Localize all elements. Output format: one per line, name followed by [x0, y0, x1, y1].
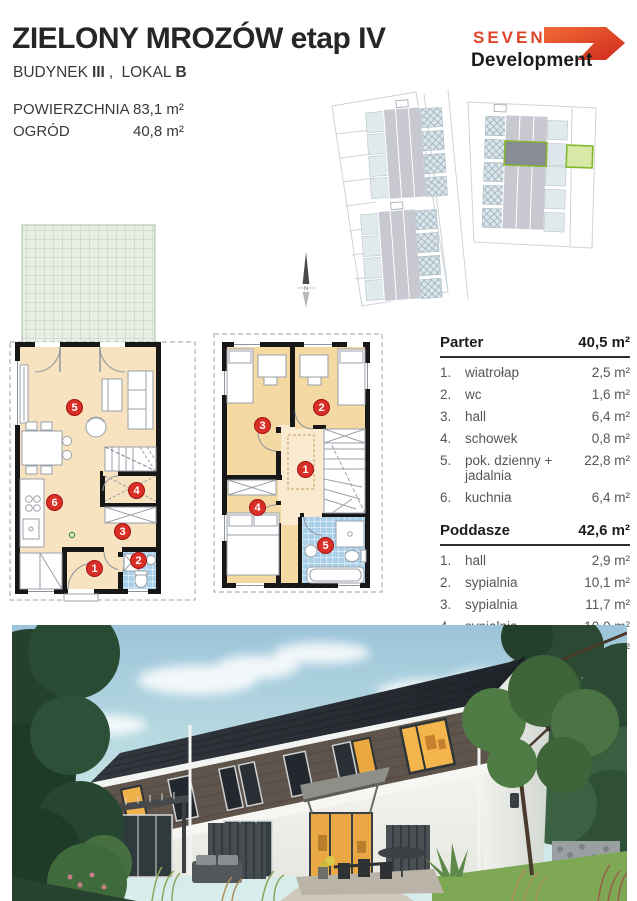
room-name: wc: [465, 387, 592, 402]
logo-brand-bottom: Development: [471, 50, 593, 72]
building-block-a: [365, 97, 448, 200]
room-area: 11,7 m²: [585, 597, 630, 612]
floor-plan-parter: 5 6 4 3 1 2: [8, 203, 200, 603]
budynek-label: BUDYNEK: [13, 64, 88, 81]
room-area: 10,1 m²: [584, 575, 630, 590]
room-area: 0,8 m²: [592, 431, 630, 446]
room-name: sypialnia: [465, 575, 584, 590]
room-badge-parter-6: 6: [46, 494, 63, 511]
room-number: 6.: [440, 490, 465, 505]
stairs: [105, 447, 156, 471]
table-parter-total: 40,5 m²: [578, 334, 630, 351]
room-badge-poddasze-1: 1: [297, 461, 314, 478]
north-arrow-icon: N: [297, 252, 315, 308]
room-tables: Parter 40,5 m² 1.wiatrołap2,5 m² 2.wc1,6…: [440, 334, 630, 673]
room-number: 2.: [440, 575, 465, 590]
room-badge-parter-1: 1: [86, 560, 103, 577]
room-name: wiatrołap: [465, 365, 592, 380]
table-parter: Parter 40,5 m² 1.wiatrołap2,5 m² 2.wc1,6…: [440, 334, 630, 505]
room-number: 2.: [440, 387, 465, 402]
building-block-c: [482, 104, 594, 233]
exterior-render-photo: [12, 625, 627, 901]
room-number: 5.: [440, 453, 465, 483]
room-name: kuchnia: [465, 490, 592, 505]
lokal-label: LOKAL: [121, 64, 171, 81]
budynek-value: III: [92, 64, 105, 81]
table-poddasze-title: Poddasze: [440, 522, 510, 539]
table-row: 5.pok. dzienny + jadalnia22,8 m²: [440, 453, 630, 483]
subtitle-separator: ,: [109, 64, 118, 81]
highlighted-unit: [504, 141, 593, 168]
room-area: 2,5 m²: [592, 365, 630, 380]
site-plan: N: [296, 86, 636, 308]
room-number: 1.: [440, 553, 465, 568]
room-badge-poddasze-5: 5: [317, 537, 334, 554]
table-row: 4.schowek0,8 m²: [440, 431, 630, 446]
room-area: 22,8 m²: [584, 453, 630, 483]
table-parter-title: Parter: [440, 334, 483, 351]
table-row: 2.sypialnia10,1 m²: [440, 575, 630, 590]
wall-lamp: [510, 793, 519, 808]
room-badge-parter-4: 4: [128, 482, 145, 499]
ogrod-label: OGRÓD: [13, 123, 133, 140]
room-badge-poddasze-4: 4: [249, 499, 266, 516]
lokal-value: B: [175, 64, 186, 81]
room-badge-poddasze-3: 3: [254, 417, 271, 434]
room-badge-poddasze-2: 2: [313, 399, 330, 416]
room-name: sypialnia: [465, 597, 585, 612]
room-area: 6,4 m²: [592, 409, 630, 424]
page-title: ZIELONY MROZÓW etap IV: [12, 22, 385, 56]
room-number: 3.: [440, 409, 465, 424]
terrace-garden: [22, 225, 155, 343]
building-block-b: [360, 199, 443, 302]
room-area: 6,4 m²: [592, 490, 630, 505]
north-label: N: [304, 287, 308, 293]
floor-plan-poddasze: 2 3 1 4 5: [212, 329, 387, 597]
spec-powierzchnia: POWIERZCHNIA83,1 m² OGRÓD40,8 m²: [13, 101, 184, 145]
room-name: hall: [465, 553, 592, 568]
building-subtitle: BUDYNEKIII, LOKALB: [13, 64, 191, 82]
ogrod-value: 40,8 m²: [133, 123, 184, 140]
room-name: hall: [465, 409, 592, 424]
table-row: 2.wc1,6 m²: [440, 387, 630, 402]
logo-brand-top: SEVEN: [473, 28, 546, 48]
seven-development-logo: SEVEN Development: [471, 26, 626, 84]
room-number: 1.: [440, 365, 465, 380]
wardrobe: [105, 507, 156, 523]
room-name: schowek: [465, 431, 592, 446]
powierzchnia-label: POWIERZCHNIA: [13, 101, 133, 118]
table-row: 3.sypialnia11,7 m²: [440, 597, 630, 612]
powierzchnia-value: 83,1 m²: [133, 101, 184, 118]
table-row: 1.hall2,9 m²: [440, 553, 630, 568]
room-number: 3.: [440, 597, 465, 612]
room-number: 4.: [440, 431, 465, 446]
room-badge-parter-5: 5: [66, 399, 83, 416]
room-badge-parter-3: 3: [114, 523, 131, 540]
table-poddasze-total: 42,6 m²: [578, 522, 630, 539]
room-area: 1,6 m²: [592, 387, 630, 402]
highlighted-garden: [566, 145, 593, 168]
room-name: pok. dzienny + jadalnia: [465, 453, 584, 483]
room-badge-parter-2: 2: [130, 552, 147, 569]
room-area: 2,9 m²: [592, 553, 630, 568]
flyer-page: ZIELONY MROZÓW etap IV BUDYNEKIII, LOKAL…: [0, 0, 637, 901]
table-row: 1.wiatrołap2,5 m²: [440, 365, 630, 380]
table-row: 3.hall6,4 m²: [440, 409, 630, 424]
table-row: 6.kuchnia6,4 m²: [440, 490, 630, 505]
